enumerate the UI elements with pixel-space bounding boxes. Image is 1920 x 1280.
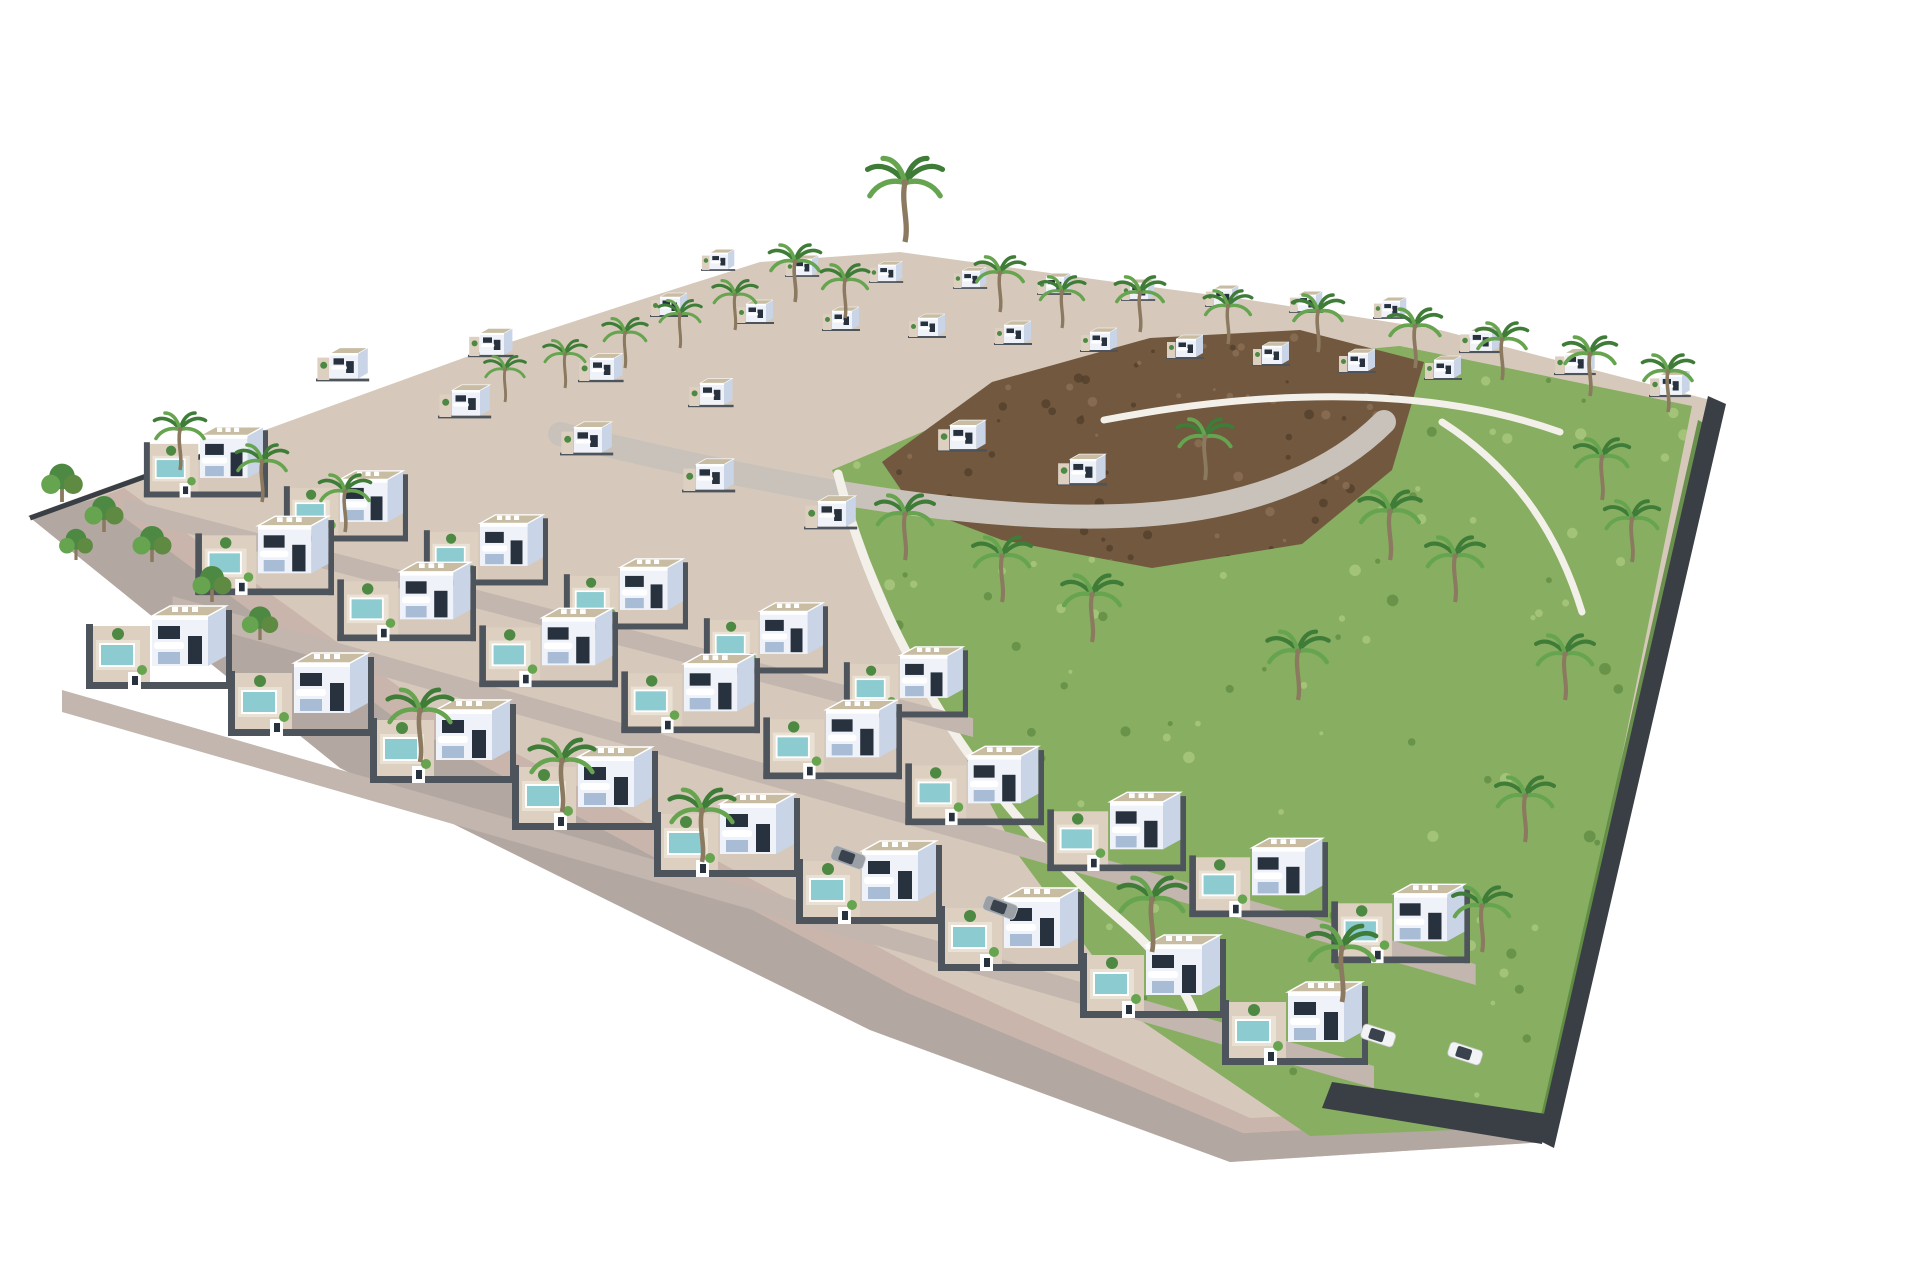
terrace-recess [1010, 934, 1032, 946]
shrub-dot [1061, 682, 1068, 689]
garden-bush [704, 258, 709, 263]
terrace-recess [158, 652, 180, 664]
plot-wall-street [905, 819, 1044, 826]
balcony-band [1091, 341, 1102, 344]
parapet-tooth [902, 842, 908, 847]
garden-bush [825, 317, 830, 322]
plot-wall-street [763, 773, 902, 780]
rock-dot [1367, 404, 1373, 410]
garden-bush [1356, 905, 1367, 916]
garden-strip [1253, 349, 1262, 365]
upper-window [158, 626, 180, 639]
pool [242, 691, 276, 713]
garden-bush [254, 675, 266, 687]
parapet-tooth [794, 604, 799, 608]
upper-window [1265, 350, 1273, 355]
entry-niche [239, 583, 245, 592]
balcony-band [453, 403, 468, 407]
shrub-dot [1415, 486, 1420, 491]
garden-bush [279, 712, 289, 722]
shrub-dot [1599, 663, 1611, 675]
balcony-band [481, 344, 494, 347]
parapet-tooth [1034, 889, 1040, 894]
balcony-band [1290, 1018, 1320, 1025]
garden-bush [822, 863, 834, 875]
balcony-band [951, 437, 966, 440]
shrub-dot [1163, 734, 1171, 742]
shrub-dot [1012, 642, 1021, 651]
parapet-tooth [1318, 983, 1324, 988]
rock-dot [1233, 472, 1243, 482]
garden-strip [1339, 356, 1348, 372]
balcony-band [438, 736, 468, 743]
garden-bush [997, 331, 1002, 336]
palm-crown [563, 352, 567, 356]
garden-strip [786, 262, 794, 276]
balcony-band [711, 261, 721, 263]
garden-bush [586, 578, 596, 588]
plot-wall-street [337, 635, 476, 642]
terrace-recess [832, 744, 853, 755]
shrub-dot [1562, 599, 1569, 606]
tall-window [930, 324, 936, 333]
palm-trunk [1227, 306, 1229, 344]
shrub-dot [1609, 1113, 1616, 1120]
tall-window [712, 472, 720, 484]
balcony-band [575, 440, 590, 444]
upper-window [1473, 335, 1481, 340]
upper-window [483, 337, 492, 342]
upper-window [868, 861, 890, 874]
parapet-tooth [646, 560, 651, 564]
parapet-tooth [1281, 839, 1287, 844]
plot-wall-street [1047, 865, 1186, 872]
plot-wall-right [328, 520, 334, 595]
shrub-dot [1633, 845, 1641, 853]
garden-bush [1072, 813, 1083, 824]
palm-crown [1562, 651, 1567, 656]
palm-crown [1452, 553, 1457, 558]
shrub-dot [1335, 634, 1341, 640]
upper-window [1351, 357, 1359, 362]
tall-window [965, 433, 972, 444]
palm-crown [999, 553, 1004, 558]
upper-window [1384, 304, 1391, 308]
palm-trunk [1414, 326, 1416, 368]
garden-bush [1652, 382, 1658, 388]
shrub-dot [1098, 612, 1107, 621]
tall-window [1578, 359, 1584, 368]
shrub-dot [1680, 1113, 1689, 1122]
upper-window [334, 358, 345, 364]
garden-tree [41, 464, 83, 502]
palm-crown [178, 427, 183, 432]
garden-bush [442, 399, 449, 406]
entry-niche [1233, 905, 1239, 914]
shrub-dot [1226, 685, 1234, 693]
upper-window [700, 469, 711, 475]
garden-bush [1061, 467, 1068, 474]
parapet-tooth [571, 609, 577, 614]
rock-dot [997, 419, 1000, 422]
plot-wall-right [963, 650, 968, 717]
pool [919, 782, 951, 803]
palm-crown [1629, 516, 1634, 521]
palm-trunk [564, 354, 565, 388]
shrub-dot [1618, 347, 1622, 351]
palm-trunk [1564, 654, 1566, 700]
roof-parapet [660, 297, 680, 299]
garden-bush [528, 664, 538, 674]
palm-crown [998, 271, 1003, 276]
shrub-dot [1195, 721, 1201, 727]
upper-window [406, 581, 427, 593]
garden-strip [1167, 342, 1176, 358]
rock-dot [1194, 439, 1202, 447]
shrub-dot [1530, 615, 1535, 620]
shrub-dot [1546, 378, 1551, 383]
garden-strip [439, 395, 451, 417]
garden-bush [538, 769, 550, 781]
garden-bush [137, 665, 147, 675]
render-canvas [0, 0, 1920, 1280]
plot-wall-right [1180, 796, 1186, 871]
tree-canopy [214, 577, 232, 595]
garden-bush [386, 618, 396, 628]
rock-dot [1283, 539, 1287, 543]
parapet-tooth [987, 747, 993, 752]
parapet-tooth [1139, 793, 1145, 798]
plot-wall-left [1189, 855, 1196, 916]
plot-wall-left [654, 812, 661, 876]
garden-strip [909, 321, 918, 337]
garden-strip [737, 307, 746, 323]
entry-niche [132, 676, 138, 685]
roof-parapet [968, 756, 1021, 760]
balcony-band [1566, 363, 1578, 366]
balcony-band [154, 642, 184, 649]
palm-trunk [624, 333, 626, 368]
tall-window [756, 824, 770, 852]
shrub-dot [1362, 636, 1370, 644]
shrub-dot [1506, 949, 1516, 959]
balcony-band [833, 320, 844, 323]
tree-canopy [193, 577, 211, 595]
palm-crown [1295, 649, 1301, 655]
balcony-band [963, 279, 973, 281]
garden-bush [1427, 366, 1432, 371]
parapet-tooth [703, 655, 709, 660]
shrub-dot [1578, 1120, 1585, 1127]
pool [100, 644, 134, 666]
parapet-tooth [654, 560, 659, 564]
garden-strip [689, 387, 699, 406]
shrub-dot [1474, 1092, 1479, 1097]
plot-wall-right [470, 566, 476, 641]
palm-trunk [561, 761, 563, 812]
upper-window [835, 315, 843, 320]
pool [1203, 874, 1235, 895]
rock-dot [1319, 499, 1328, 508]
entry-niche [523, 675, 529, 684]
shrub-dot [1484, 776, 1492, 784]
shrub-dot [1375, 559, 1380, 564]
palm-crown [417, 708, 423, 714]
tall-window [231, 452, 243, 476]
parapet-tooth [1148, 793, 1154, 798]
garden-bush [1273, 1041, 1283, 1051]
balcony-band [919, 327, 930, 330]
entry-niche [1126, 1005, 1132, 1014]
pool [1094, 973, 1128, 995]
roof-parapet [1434, 360, 1454, 362]
balcony-band [686, 689, 715, 696]
plot-wall-left [144, 442, 150, 496]
entry-niche [558, 817, 564, 826]
parapet-tooth [1328, 983, 1334, 988]
upper-window [456, 395, 467, 401]
palm-trunk [1139, 293, 1141, 332]
tall-window [931, 672, 943, 696]
entry-niche [984, 958, 990, 967]
shrub-dot [1668, 705, 1677, 714]
shrub-dot [1669, 918, 1678, 927]
roof-parapet [950, 425, 976, 427]
villa [701, 249, 735, 271]
palm-trunk [701, 811, 703, 862]
tall-window [576, 637, 589, 664]
terrace-recess [1258, 882, 1279, 893]
roof-parapet [574, 427, 602, 429]
entry-niche [1375, 951, 1381, 960]
garden-bush [362, 583, 373, 594]
tall-window [888, 270, 893, 278]
rock-dot [1041, 399, 1050, 408]
shrub-dot [903, 572, 908, 577]
balcony-band [296, 689, 326, 696]
tall-window [292, 545, 305, 572]
palm-trunk [794, 262, 796, 303]
palm-trunk [1454, 556, 1456, 602]
upper-window [442, 720, 464, 733]
garden-strip [1650, 378, 1659, 396]
plot-wall-left [1047, 809, 1054, 870]
garden-bush [446, 534, 456, 544]
rock-dot [1286, 434, 1293, 441]
palm-crown [1588, 352, 1593, 357]
terrace-recess [406, 606, 427, 617]
tree-canopy [154, 537, 172, 555]
upper-window [1294, 1002, 1316, 1015]
terrace-recess [442, 746, 464, 758]
roof-parapet [1090, 332, 1110, 334]
garden-strip [1460, 334, 1469, 352]
roof-parapet [1660, 375, 1682, 377]
tall-window [718, 683, 731, 710]
palm-trunk [734, 295, 736, 330]
terrace-recess [584, 793, 606, 805]
upper-window [690, 673, 711, 685]
parapet-tooth [997, 747, 1003, 752]
plot-wall-right [612, 612, 618, 687]
parapet-tooth [864, 701, 870, 706]
tall-window [791, 628, 803, 652]
rock-dot [1176, 393, 1181, 398]
garden-bush [582, 365, 588, 371]
shrub-dot [1220, 572, 1227, 579]
shrub-dot [1661, 453, 1670, 462]
balcony-band [879, 273, 889, 275]
palm-trunk [1091, 595, 1093, 642]
palm-crown [1149, 896, 1155, 902]
parapet-tooth [608, 748, 614, 753]
roof-parapet [1394, 894, 1447, 898]
tall-window [1392, 306, 1397, 314]
parapet-tooth [561, 609, 567, 614]
shrub-dot [984, 592, 992, 600]
shrub-dot [1106, 923, 1113, 930]
parapet-tooth [429, 563, 435, 568]
balcony-band [701, 394, 714, 397]
palm-crown [260, 459, 265, 464]
rock-dot [1106, 545, 1113, 552]
roof-parapet [1288, 992, 1344, 996]
palm-trunk [1061, 292, 1063, 328]
upper-window [205, 444, 224, 455]
roof-parapet [832, 311, 852, 313]
shrub-dot [1623, 935, 1630, 942]
parapet-tooth [497, 516, 502, 520]
palm-crown [733, 293, 737, 297]
rock-dot [1213, 388, 1216, 391]
roof-parapet [826, 710, 879, 714]
upper-window [1007, 329, 1015, 334]
plot-wall-left [512, 765, 519, 829]
garden-bush [680, 816, 692, 828]
entry-niche [416, 770, 422, 779]
balcony-band [1006, 924, 1036, 931]
upper-window [1073, 464, 1083, 470]
balcony-band [828, 735, 857, 742]
balcony-band [580, 783, 610, 790]
balcony-band [1177, 348, 1188, 351]
roof-parapet [1262, 346, 1282, 348]
entry-niche [1268, 1052, 1274, 1061]
balcony-band [1071, 471, 1086, 474]
upper-window [593, 362, 602, 367]
garden-bush [1214, 859, 1225, 870]
balcony-band [331, 366, 346, 370]
plot-wall-left [796, 859, 803, 923]
shrub-dot [1339, 615, 1345, 621]
rock-dot [1342, 416, 1347, 421]
palm-trunk [844, 280, 846, 318]
roof-parapet [962, 271, 980, 272]
roof-parapet [258, 526, 311, 530]
rock-dot [1215, 533, 1220, 538]
palm-tree [868, 158, 943, 242]
shrub-dot [1499, 968, 1508, 977]
shrub-dot [1653, 832, 1661, 840]
plot-wall-street [621, 727, 760, 734]
palm-trunk [1317, 312, 1319, 353]
shrub-dot [910, 581, 917, 588]
roof-parapet [620, 567, 668, 570]
garden-strip [469, 337, 479, 356]
parapet-tooth [926, 648, 931, 652]
entry-niche [807, 767, 813, 776]
palm-crown [678, 312, 682, 316]
plot-wall-street [512, 823, 658, 830]
shrub-dot [1582, 399, 1586, 403]
tall-window [1002, 775, 1015, 802]
rock-dot [1066, 384, 1073, 391]
parapet-tooth [580, 609, 586, 614]
garden-bush [1341, 359, 1346, 364]
shrub-dot [1408, 738, 1416, 746]
villa [86, 606, 232, 689]
plot-wall-right [1464, 888, 1470, 963]
garden-strip [579, 362, 589, 381]
plot-wall-left [337, 579, 344, 640]
palm-crown [1138, 291, 1143, 296]
garden-bush [1376, 306, 1381, 311]
garden-bush [964, 910, 976, 922]
garden-bush [653, 303, 658, 308]
pool [526, 785, 560, 807]
parapet-tooth [287, 517, 293, 522]
tall-window [472, 730, 486, 758]
garden-bush [670, 710, 680, 720]
terrace-recess [625, 598, 644, 608]
terrace-recess [1152, 981, 1174, 993]
garden-bush [1169, 345, 1174, 350]
pool [1236, 1020, 1270, 1042]
upper-window [1152, 955, 1174, 968]
upper-window [300, 673, 322, 686]
parapet-tooth [1024, 889, 1030, 894]
parapet-tooth [226, 428, 231, 432]
entry-niche [665, 721, 671, 730]
palm-trunk [1389, 511, 1391, 560]
garden-bush [320, 362, 327, 369]
upper-window [1258, 857, 1279, 869]
pool [810, 879, 844, 901]
palm-trunk [344, 492, 346, 533]
upper-window [548, 627, 569, 639]
shrub-dot [1319, 731, 1323, 735]
rock-dot [1137, 361, 1141, 365]
shrub-dot [1491, 1001, 1496, 1006]
shrub-dot [1515, 985, 1524, 994]
upper-window [1437, 364, 1445, 369]
garden-strip [938, 429, 949, 450]
garden-bush [1380, 940, 1390, 950]
parapet-tooth [1413, 885, 1419, 890]
upper-window [822, 506, 833, 512]
entry-niche [381, 629, 387, 638]
garden-strip [1425, 363, 1434, 379]
palm-crown [559, 758, 565, 764]
plot-wall-left [86, 624, 93, 688]
palm-crown [1413, 324, 1418, 329]
shrub-dot [1470, 517, 1477, 524]
balcony-band [1396, 919, 1425, 926]
tall-window [1188, 345, 1194, 354]
parapet-tooth [917, 648, 922, 652]
terrace-recess [345, 510, 364, 520]
tall-window [1673, 381, 1679, 390]
